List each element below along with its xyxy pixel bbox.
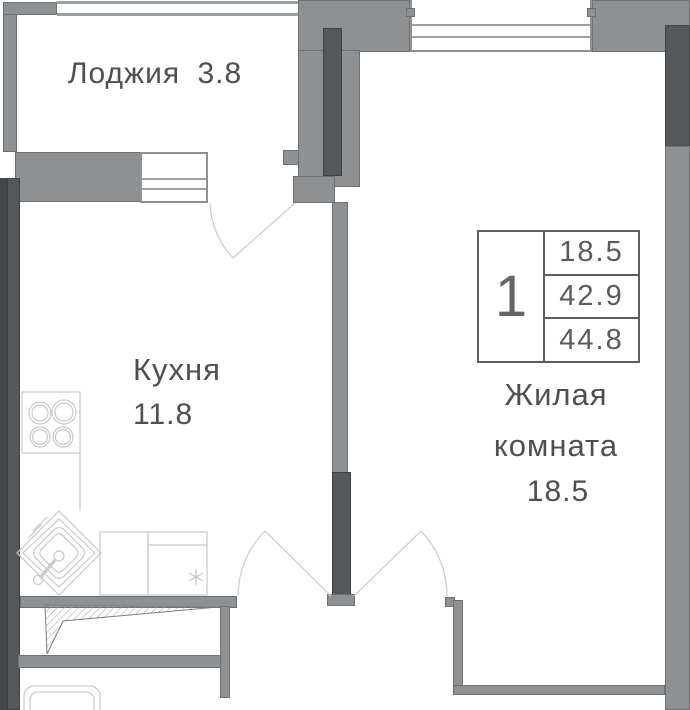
- door-kitchen-hall: [238, 531, 331, 596]
- kitchen-area: 11.8: [133, 398, 193, 432]
- kitchen-label: Кухня: [133, 352, 221, 388]
- counter-icon: [100, 532, 207, 595]
- living-label-line2: комната: [456, 428, 656, 464]
- living-label-line1: Жилая: [456, 377, 656, 413]
- bathtub-icon: [24, 686, 100, 710]
- total-area-cell: 44.8: [545, 319, 638, 361]
- areas-column: 18.5 42.9 44.8: [545, 232, 638, 361]
- stove-icon: [22, 392, 80, 511]
- floor-plan: { "plan": { "type": "apartment-floor-pla…: [0, 0, 690, 710]
- hatched-shaft: [45, 605, 218, 654]
- loggia-name: Лоджия: [68, 57, 180, 90]
- rooms-count-cell: 1: [479, 232, 545, 361]
- asterisk-marker: [189, 569, 203, 585]
- apartment-info-table: 1 18.5 42.9 44.8: [477, 230, 640, 363]
- living-area: 18.5: [458, 475, 658, 509]
- door-loggia-kitchen: [210, 203, 295, 258]
- door-living-hall: [354, 531, 447, 596]
- kitchen-name: Кухня: [133, 352, 221, 387]
- loggia-label: Лоджия 3.8: [40, 57, 270, 91]
- living-area-cell: 18.5: [545, 232, 638, 276]
- apartment-area-cell: 42.9: [545, 276, 638, 320]
- sink-icon: [17, 511, 101, 595]
- loggia-area: 3.8: [197, 57, 242, 90]
